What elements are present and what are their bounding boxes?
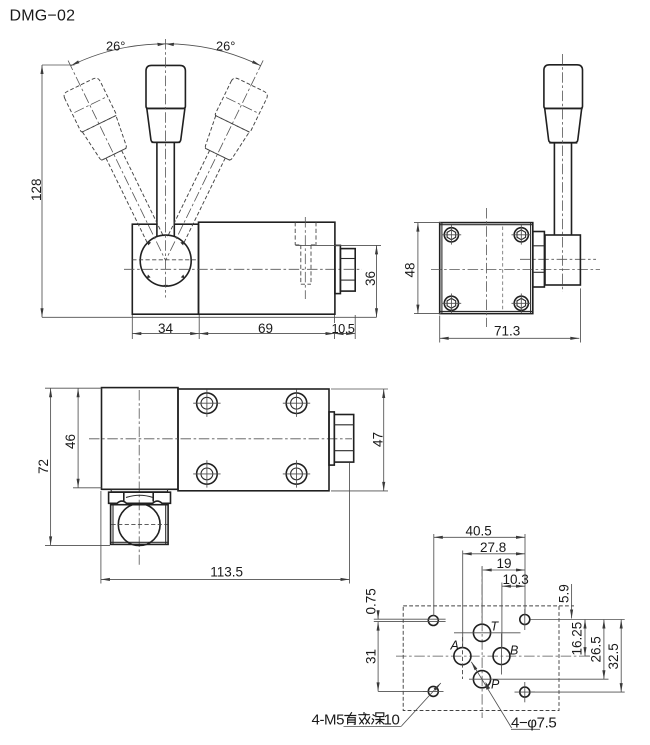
svg-text:T: T [491,620,500,634]
svg-text:36: 36 [363,271,378,286]
svg-text:27.8: 27.8 [480,540,506,555]
svg-text:4-M5: 4-M5 [312,712,345,729]
svg-text:B: B [510,643,518,657]
svg-text:69: 69 [258,321,273,336]
svg-text:10.5: 10.5 [332,321,355,336]
svg-text:4−φ7.5: 4−φ7.5 [511,715,556,732]
svg-text:DMG−02: DMG−02 [10,8,76,25]
svg-text:5.9: 5.9 [557,584,572,603]
svg-text:71.3: 71.3 [494,324,520,339]
svg-text:34: 34 [158,321,174,336]
svg-text:113.5: 113.5 [210,565,243,580]
svg-text:128: 128 [29,178,44,201]
svg-text:P: P [491,677,500,691]
svg-text:16.25: 16.25 [570,622,585,656]
svg-text:19: 19 [497,556,512,571]
svg-text:26.5: 26.5 [589,636,604,662]
svg-text:46: 46 [63,434,78,449]
svg-text:47: 47 [371,432,386,447]
svg-text:A: A [450,639,459,653]
svg-text:26°: 26° [106,39,125,54]
svg-text:40.5: 40.5 [466,523,492,538]
svg-text:0.75: 0.75 [364,588,379,614]
svg-text:10.3: 10.3 [503,572,529,587]
svg-text:32.5: 32.5 [606,643,621,669]
svg-text:26°: 26° [216,39,235,54]
svg-text:31: 31 [364,649,379,664]
svg-text:48: 48 [403,262,418,277]
svg-text:10: 10 [384,712,400,729]
svg-text:72: 72 [36,459,51,474]
